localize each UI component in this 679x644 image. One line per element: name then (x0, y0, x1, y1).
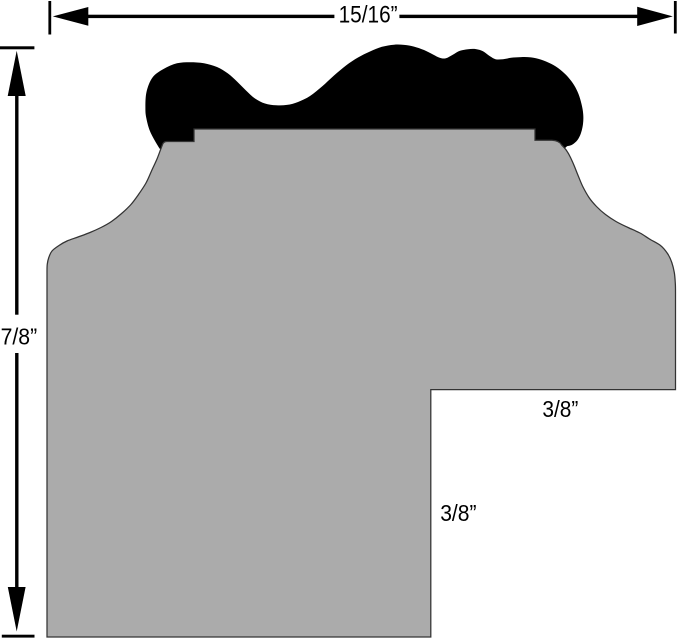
svg-text:3/8”: 3/8” (440, 500, 476, 526)
svg-text:3/8”: 3/8” (542, 396, 578, 422)
svg-text:7/8”: 7/8” (1, 323, 38, 349)
svg-text:15/16”: 15/16” (339, 2, 398, 29)
